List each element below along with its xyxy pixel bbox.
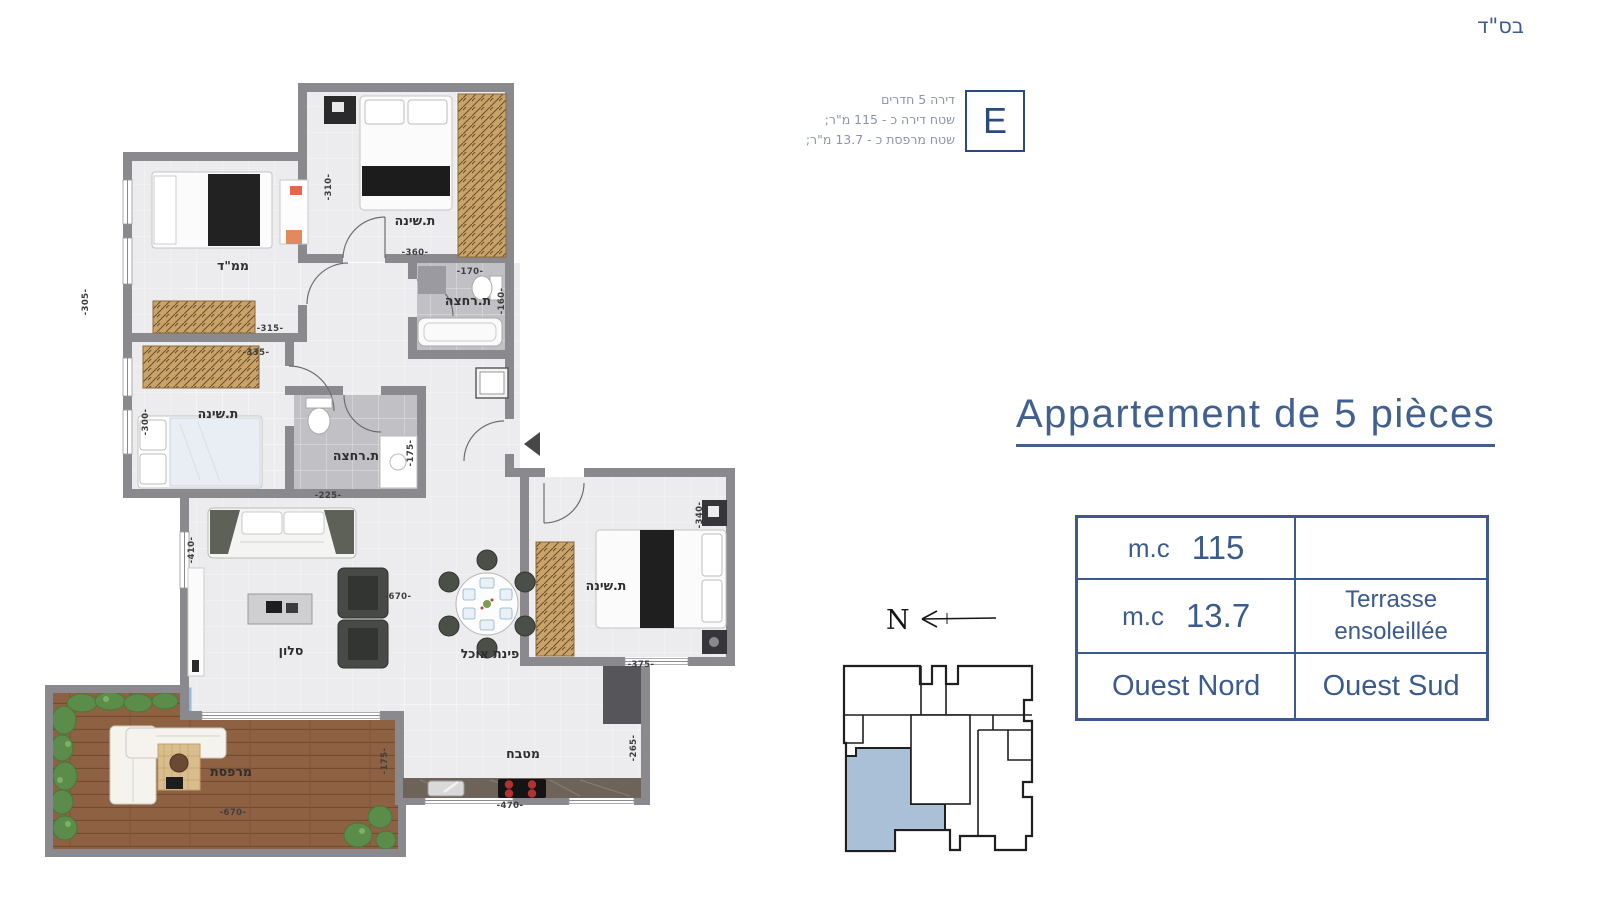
room-label: סלון bbox=[279, 643, 304, 658]
shower bbox=[418, 266, 446, 294]
bathtub bbox=[418, 318, 502, 346]
dimension-label: -335- bbox=[243, 348, 270, 358]
unit-letter-badge: E bbox=[965, 90, 1025, 152]
room-label: מטבח bbox=[506, 746, 540, 761]
tv-unit bbox=[188, 568, 204, 676]
dimension-label: -225- bbox=[315, 491, 342, 501]
dimension-label: -375- bbox=[628, 660, 655, 670]
sink bbox=[428, 781, 464, 796]
entry-arrow-icon bbox=[524, 432, 540, 456]
unit-info-line1: דירה 5 חדרים bbox=[740, 90, 955, 110]
room-label: ת.שינה bbox=[586, 578, 627, 593]
orientation-west-south: Ouest Sud bbox=[1323, 670, 1460, 703]
wardrobe bbox=[458, 94, 506, 257]
mamad-bed bbox=[152, 172, 272, 248]
north-arrow-icon bbox=[922, 611, 996, 627]
outdoor-table bbox=[158, 744, 200, 790]
desk bbox=[280, 180, 308, 244]
room-label: פינת אוכל bbox=[461, 646, 520, 661]
cooktop bbox=[498, 779, 546, 798]
table-cell-terrace-label: Terrasse ensoleillée bbox=[1296, 580, 1486, 654]
bed bbox=[360, 96, 452, 210]
terrace-unit: m.c bbox=[1122, 601, 1164, 632]
dimension-label: -670- bbox=[385, 592, 412, 602]
dimension-label: -410- bbox=[187, 537, 197, 564]
unit-info-line2: שטח דירה כ - 115 מ"ר; bbox=[740, 110, 955, 130]
table-cell-area-main: m.c 115 bbox=[1078, 518, 1296, 580]
unit-info-block: דירה 5 חדרים שטח דירה כ - 115 מ"ר; שטח מ… bbox=[740, 90, 955, 150]
dimension-label: -175- bbox=[380, 748, 390, 775]
table-cell-orientation-left: Ouest Nord bbox=[1078, 654, 1296, 718]
unit-letter: E bbox=[983, 100, 1007, 142]
room-label: ת.שינה bbox=[395, 213, 436, 228]
dimension-label: -175- bbox=[406, 440, 416, 467]
surface-table: m.c 115 m.c 13.7 Terrasse ensoleillée Ou… bbox=[1075, 515, 1489, 721]
bed bbox=[138, 416, 262, 488]
coffee-table bbox=[248, 594, 312, 624]
site-plan bbox=[826, 648, 1038, 860]
dimension-label: -360- bbox=[402, 248, 429, 258]
room-label: מרפסת bbox=[210, 764, 252, 779]
page-title: Appartement de 5 pièces bbox=[1016, 392, 1495, 447]
bsd-blessing: בס"ד bbox=[1430, 14, 1524, 38]
dimension-label: -300- bbox=[141, 409, 151, 436]
wardrobe bbox=[536, 542, 574, 656]
toilet bbox=[306, 398, 332, 434]
closet bbox=[153, 301, 255, 333]
terrace-label-line1: Terrasse bbox=[1345, 584, 1437, 616]
room-label: ת.רחצה bbox=[333, 448, 379, 463]
entry-cabinet bbox=[476, 368, 508, 398]
dimension-label: -310- bbox=[324, 174, 334, 201]
armchairs bbox=[338, 568, 388, 668]
terrace-label-line2: ensoleillée bbox=[1334, 616, 1447, 648]
area-value: 115 bbox=[1192, 529, 1245, 567]
dimension-label: -160- bbox=[497, 288, 507, 315]
dimension-label: -470- bbox=[497, 801, 524, 811]
dimension-label: -305- bbox=[81, 289, 91, 316]
room-label: ממ"ד bbox=[217, 258, 249, 273]
compass: N bbox=[872, 598, 1002, 640]
dimension-label: -265- bbox=[629, 735, 639, 762]
fridge-cabinet bbox=[603, 666, 641, 724]
unit-info-line3: שטח מרפסת כ - 13.7 מ"ר; bbox=[740, 130, 955, 150]
sofa bbox=[208, 508, 356, 558]
table-cell-orientation-right: Ouest Sud bbox=[1296, 654, 1486, 718]
dimension-label: -315- bbox=[257, 324, 284, 334]
kitchen-counter bbox=[403, 778, 641, 798]
area-unit: m.c bbox=[1128, 533, 1170, 564]
dimension-label: -670- bbox=[220, 808, 247, 818]
room-label: ת.רחצה bbox=[445, 293, 491, 308]
table-cell-empty bbox=[1296, 518, 1486, 580]
north-label: N bbox=[886, 605, 910, 636]
orientation-west-north: Ouest Nord bbox=[1112, 670, 1260, 703]
table-cell-terrace-area: m.c 13.7 bbox=[1078, 580, 1296, 654]
terrace-value: 13.7 bbox=[1186, 597, 1250, 635]
dimension-label: -170- bbox=[457, 267, 484, 277]
room-label: ת.שינה bbox=[198, 406, 239, 421]
dimension-label: -340- bbox=[695, 502, 705, 529]
floor-plan: ת.שינהממ"דת.רחצהת.שינהת.רחצהסלוןפינת אוכ… bbox=[40, 80, 740, 860]
closet bbox=[143, 346, 259, 388]
